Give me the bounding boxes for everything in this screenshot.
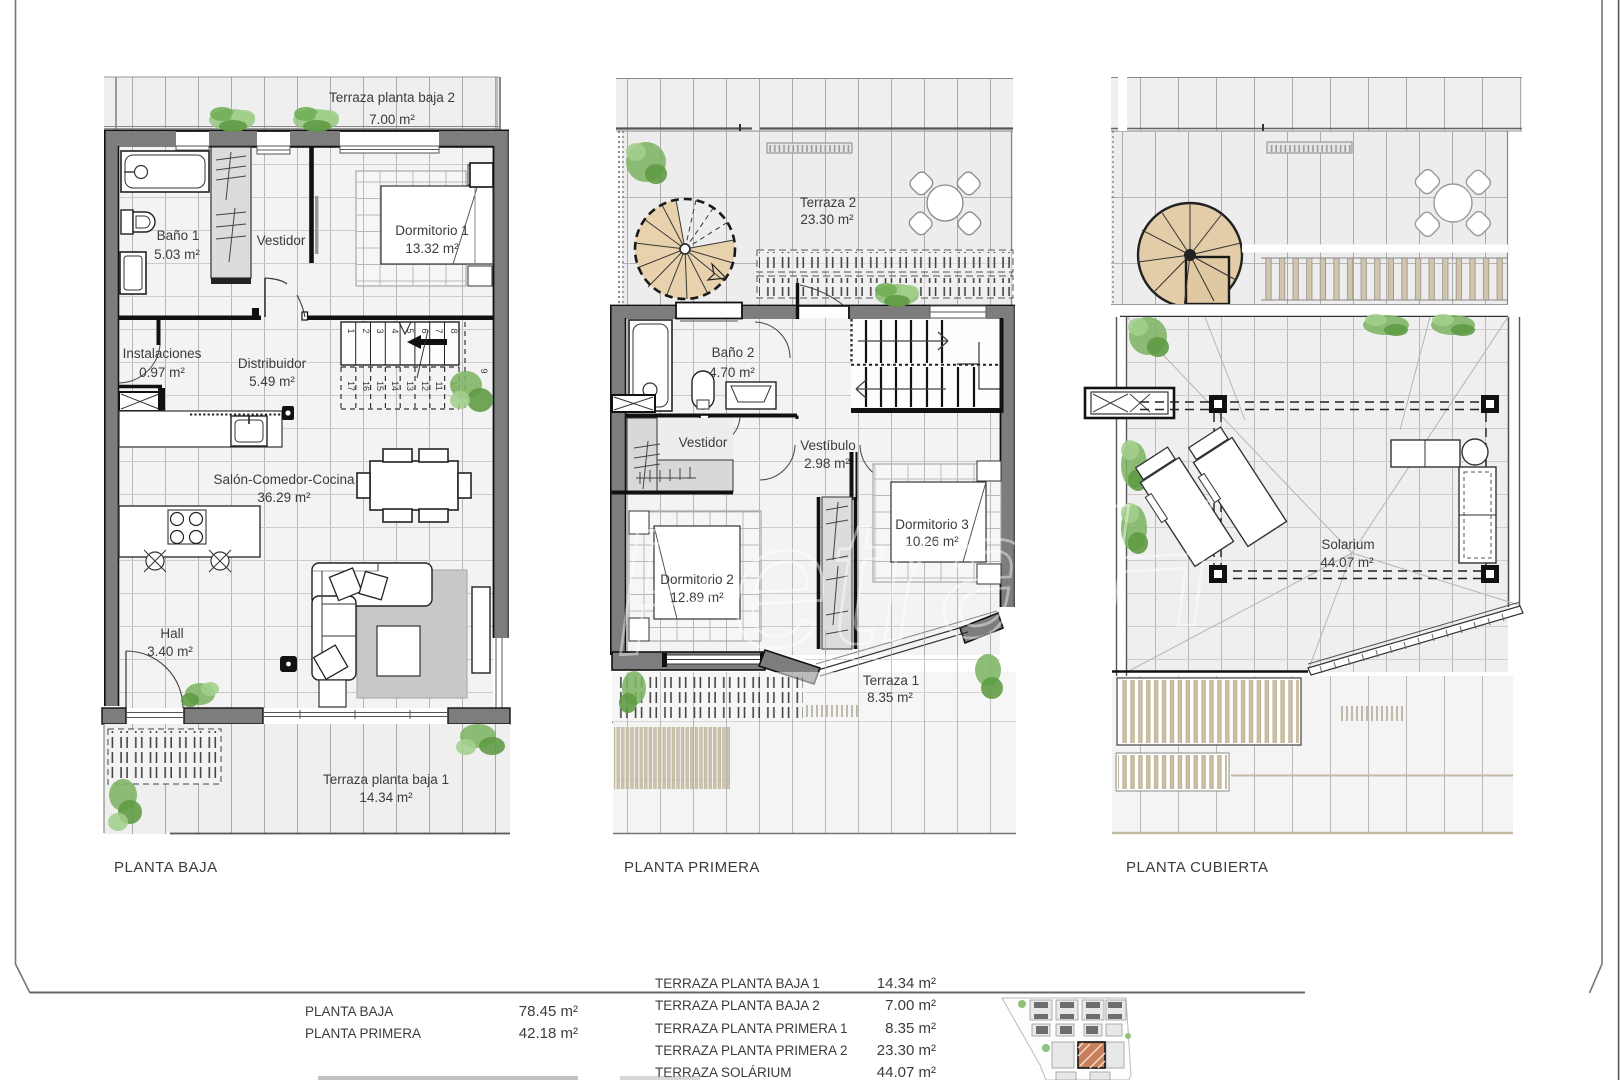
svg-text:7: 7 <box>434 328 444 333</box>
svg-text:11: 11 <box>434 381 444 390</box>
svg-text:13: 13 <box>405 381 415 391</box>
svg-text:Salón-Comedor-Cocina: Salón-Comedor-Cocina <box>213 472 355 487</box>
svg-text:8.35 m²: 8.35 m² <box>885 1020 936 1037</box>
svg-text:14: 14 <box>390 381 400 391</box>
svg-text:6: 6 <box>420 328 430 333</box>
svg-text:23.30 m²: 23.30 m² <box>877 1042 936 1059</box>
svg-text:Baño 2: Baño 2 <box>712 345 755 360</box>
svg-text:PLANTA CUBIERTA: PLANTA CUBIERTA <box>1126 859 1269 876</box>
svg-text:36.29 m²: 36.29 m² <box>257 490 311 505</box>
svg-text:TERRAZA PLANTA BAJA 2: TERRAZA PLANTA BAJA 2 <box>655 998 820 1013</box>
svg-text:PLANTA BAJA: PLANTA BAJA <box>305 1004 393 1019</box>
svg-text:8: 8 <box>449 328 459 333</box>
svg-text:7.00 m²: 7.00 m² <box>885 997 936 1014</box>
svg-text:2: 2 <box>361 328 371 333</box>
svg-text:44.07 m²: 44.07 m² <box>877 1064 936 1080</box>
svg-text:5: 5 <box>405 328 415 333</box>
svg-text:Terraza planta baja 2: Terraza planta baja 2 <box>329 90 455 105</box>
svg-text:Solarium: Solarium <box>1321 537 1374 552</box>
svg-text:PLANTA PRIMERA: PLANTA PRIMERA <box>624 859 760 876</box>
svg-text:12: 12 <box>420 381 430 391</box>
svg-text:23.30 m²: 23.30 m² <box>800 212 854 227</box>
svg-text:42.18 m²: 42.18 m² <box>519 1025 578 1042</box>
svg-text:14.34 m²: 14.34 m² <box>877 975 936 992</box>
svg-text:78.45 m²: 78.45 m² <box>519 1003 578 1020</box>
svg-text:15: 15 <box>375 381 385 391</box>
svg-text:Baño 1: Baño 1 <box>157 228 200 243</box>
svg-text:Instalaciones: Instalaciones <box>123 346 202 361</box>
svg-text:17: 17 <box>346 381 356 391</box>
svg-text:5.03 m²: 5.03 m² <box>154 247 200 262</box>
svg-text:TERRAZA PLANTA PRIMERA 1: TERRAZA PLANTA PRIMERA 1 <box>655 1021 848 1036</box>
svg-text:Distribuidor: Distribuidor <box>238 356 307 371</box>
svg-text:4: 4 <box>390 328 400 333</box>
svg-text:Vestíbulo: Vestíbulo <box>800 438 856 453</box>
svg-text:44.07 m²: 44.07 m² <box>1320 555 1374 570</box>
svg-text:Terraza planta baja 1: Terraza planta baja 1 <box>323 772 449 787</box>
svg-text:Vestidor: Vestidor <box>679 435 728 450</box>
svg-text:TERRAZA PLANTA BAJA 1: TERRAZA PLANTA BAJA 1 <box>655 976 820 991</box>
svg-text:PLANTA PRIMERA: PLANTA PRIMERA <box>305 1026 421 1041</box>
svg-text:Vestidor: Vestidor <box>257 233 306 248</box>
svg-text:PLANTA BAJA: PLANTA BAJA <box>114 859 218 876</box>
svg-text:16: 16 <box>361 381 371 391</box>
svg-text:Hall: Hall <box>160 626 183 641</box>
svg-text:Petra H: Petra H <box>607 463 1220 693</box>
svg-text:14.34 m²: 14.34 m² <box>359 790 413 805</box>
svg-text:7.00 m²: 7.00 m² <box>369 112 415 127</box>
svg-text:Dormitorio 1: Dormitorio 1 <box>395 223 469 238</box>
svg-text:1: 1 <box>346 328 356 333</box>
svg-text:3: 3 <box>375 328 385 333</box>
svg-text:13.32 m²: 13.32 m² <box>405 241 459 256</box>
svg-text:3.40 m²: 3.40 m² <box>147 644 193 659</box>
svg-text:9: 9 <box>479 368 489 373</box>
svg-text:5.49 m²: 5.49 m² <box>249 374 295 389</box>
svg-text:2.98 m²: 2.98 m² <box>804 456 850 471</box>
svg-text:Terraza 2: Terraza 2 <box>800 195 856 210</box>
svg-text:4.70 m²: 4.70 m² <box>709 365 755 380</box>
svg-text:8.35 m²: 8.35 m² <box>867 690 913 705</box>
svg-text:TERRAZA PLANTA PRIMERA 2: TERRAZA PLANTA PRIMERA 2 <box>655 1043 848 1058</box>
svg-text:0.97 m²: 0.97 m² <box>139 365 185 380</box>
